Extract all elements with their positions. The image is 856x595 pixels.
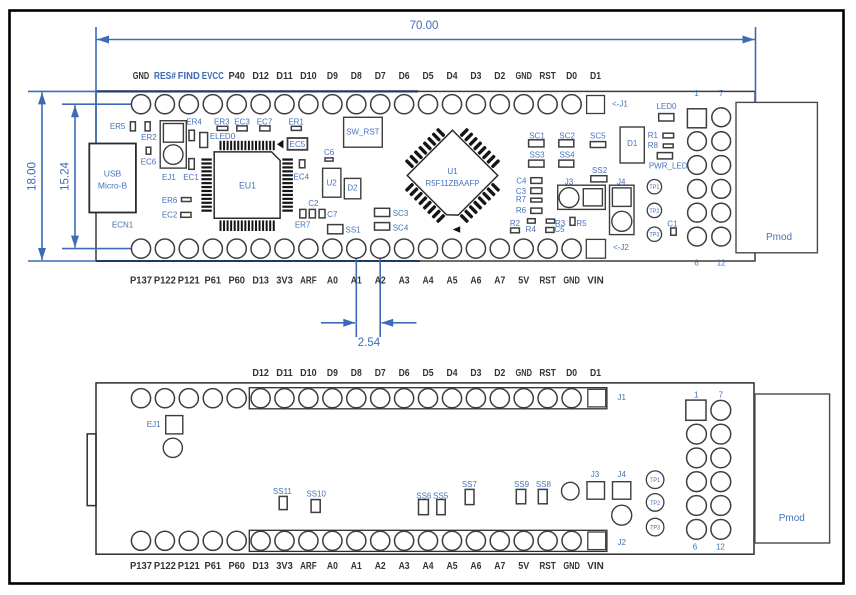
svg-text:A2: A2 xyxy=(375,561,386,572)
svg-text:D9: D9 xyxy=(327,368,338,379)
svg-text:D0: D0 xyxy=(566,368,577,379)
svg-text:EJ1: EJ1 xyxy=(147,420,161,429)
svg-text:18.00: 18.00 xyxy=(27,162,39,191)
svg-text:EC3: EC3 xyxy=(234,117,250,126)
svg-text:D10: D10 xyxy=(300,71,317,82)
svg-text:USB: USB xyxy=(104,169,122,179)
svg-text:A4: A4 xyxy=(423,561,434,572)
svg-text:6: 6 xyxy=(694,259,699,268)
svg-text:ER4: ER4 xyxy=(186,117,202,126)
svg-text:D1: D1 xyxy=(590,71,601,82)
svg-text:LED0: LED0 xyxy=(656,102,677,111)
svg-text:SS3: SS3 xyxy=(529,151,545,160)
svg-text:R2: R2 xyxy=(510,219,521,228)
svg-text:EC6: EC6 xyxy=(141,157,157,166)
svg-text:A7: A7 xyxy=(494,561,505,572)
svg-text:D13: D13 xyxy=(252,276,269,287)
svg-text:D1: D1 xyxy=(627,139,638,148)
svg-text:D11: D11 xyxy=(276,71,293,82)
svg-text:TP2: TP2 xyxy=(650,500,660,507)
svg-text:D11: D11 xyxy=(276,368,293,379)
svg-text:5V: 5V xyxy=(518,276,529,287)
svg-text:SW_RST: SW_RST xyxy=(346,128,379,137)
svg-text:SC5: SC5 xyxy=(590,132,606,141)
svg-text:P40: P40 xyxy=(228,71,245,82)
svg-text:TP3: TP3 xyxy=(650,525,660,532)
svg-text:ER7: ER7 xyxy=(295,220,311,229)
svg-text:P121: P121 xyxy=(178,276,200,287)
svg-text:C7: C7 xyxy=(327,210,338,219)
svg-text:EC7: EC7 xyxy=(257,117,273,126)
svg-text:7: 7 xyxy=(719,390,724,399)
svg-text:P60: P60 xyxy=(228,561,245,572)
svg-text:D6: D6 xyxy=(399,71,410,82)
svg-text:3V3: 3V3 xyxy=(276,276,293,287)
svg-text:P61: P61 xyxy=(205,276,222,287)
svg-text:D10: D10 xyxy=(300,368,317,379)
svg-text:D7: D7 xyxy=(375,71,386,82)
svg-text:RST: RST xyxy=(539,276,556,287)
svg-text:70.00: 70.00 xyxy=(410,20,439,32)
svg-text:ELED0: ELED0 xyxy=(210,132,236,141)
svg-text:D6: D6 xyxy=(399,368,410,379)
svg-text:3V3: 3V3 xyxy=(276,561,293,572)
svg-text:D4: D4 xyxy=(447,368,458,379)
svg-text:A0: A0 xyxy=(327,561,338,572)
svg-text:A5: A5 xyxy=(447,276,458,287)
svg-text:ARF: ARF xyxy=(300,561,317,572)
svg-text:GND: GND xyxy=(515,368,532,379)
svg-text:RST: RST xyxy=(539,71,556,82)
svg-text:EC4: EC4 xyxy=(294,173,310,182)
svg-text:SS7: SS7 xyxy=(462,480,478,489)
svg-text:SS9: SS9 xyxy=(514,480,530,489)
svg-text:<-J2: <-J2 xyxy=(613,243,629,252)
svg-text:12: 12 xyxy=(716,542,725,551)
svg-text:D5: D5 xyxy=(423,368,434,379)
svg-text:6: 6 xyxy=(693,542,698,551)
svg-text:RST: RST xyxy=(539,368,556,379)
svg-text:SS2: SS2 xyxy=(592,166,608,175)
svg-text:RST: RST xyxy=(539,561,556,572)
svg-text:GND: GND xyxy=(563,561,580,572)
svg-text:A0: A0 xyxy=(327,276,338,287)
svg-text:D9: D9 xyxy=(327,71,338,82)
svg-text:P60: P60 xyxy=(228,276,245,287)
svg-text:PWR_LED: PWR_LED xyxy=(649,161,688,170)
svg-text:A2: A2 xyxy=(375,276,386,287)
svg-text:ER6: ER6 xyxy=(162,196,178,205)
svg-text:D3: D3 xyxy=(470,368,481,379)
svg-text:P121: P121 xyxy=(178,561,200,572)
svg-text:A6: A6 xyxy=(470,276,481,287)
svg-text:15.24: 15.24 xyxy=(60,162,72,191)
svg-text:RES#: RES# xyxy=(154,71,176,82)
svg-text:SC4: SC4 xyxy=(393,224,409,233)
svg-text:SS10: SS10 xyxy=(306,490,326,499)
svg-text:R5: R5 xyxy=(576,219,587,228)
svg-text:D2: D2 xyxy=(347,183,358,192)
svg-text:D12: D12 xyxy=(252,368,269,379)
svg-text:A1: A1 xyxy=(351,276,362,287)
svg-text:VIN: VIN xyxy=(587,561,604,572)
svg-text:A7: A7 xyxy=(494,276,505,287)
svg-text:Pmod: Pmod xyxy=(779,513,805,524)
svg-text:R5F11ZBAAFP: R5F11ZBAAFP xyxy=(426,178,480,188)
svg-text:D0: D0 xyxy=(566,71,577,82)
svg-text:J3: J3 xyxy=(591,470,600,479)
svg-text:A1: A1 xyxy=(351,561,362,572)
svg-text:U2: U2 xyxy=(326,179,337,188)
svg-text:P122: P122 xyxy=(154,561,176,572)
svg-text:P137: P137 xyxy=(130,561,152,572)
svg-text:C2: C2 xyxy=(308,199,319,208)
svg-text:Micro-B: Micro-B xyxy=(98,181,128,191)
svg-text:SS4: SS4 xyxy=(559,151,575,160)
svg-text:C4: C4 xyxy=(516,176,527,185)
svg-text:D7: D7 xyxy=(375,368,386,379)
svg-text:12: 12 xyxy=(717,259,726,268)
svg-text:D13: D13 xyxy=(252,561,269,572)
svg-text:A3: A3 xyxy=(399,561,410,572)
svg-text:ARF: ARF xyxy=(300,276,317,287)
svg-text:FIND: FIND xyxy=(178,71,200,82)
svg-text:SS8: SS8 xyxy=(536,480,552,489)
svg-text:D2: D2 xyxy=(494,71,505,82)
svg-text:GND: GND xyxy=(515,71,532,82)
svg-text:GND: GND xyxy=(133,71,150,82)
svg-text:EJ1: EJ1 xyxy=(162,173,176,182)
svg-text:P61: P61 xyxy=(205,561,222,572)
svg-text:A4: A4 xyxy=(423,276,434,287)
svg-text:C6: C6 xyxy=(324,148,335,157)
svg-text:R1: R1 xyxy=(648,131,659,140)
svg-text:R8: R8 xyxy=(648,141,659,150)
svg-text:D12: D12 xyxy=(252,71,269,82)
svg-text:TP3: TP3 xyxy=(649,232,659,239)
svg-text:2.54: 2.54 xyxy=(358,337,381,349)
svg-text:ECN1: ECN1 xyxy=(112,221,134,230)
svg-text:P122: P122 xyxy=(154,276,176,287)
svg-text:R4: R4 xyxy=(526,225,537,234)
svg-text:D5: D5 xyxy=(423,71,434,82)
svg-text:SS1: SS1 xyxy=(346,226,362,235)
svg-text:J1: J1 xyxy=(617,393,626,402)
svg-text:D4: D4 xyxy=(447,71,458,82)
svg-text:A6: A6 xyxy=(470,561,481,572)
svg-text:C1: C1 xyxy=(667,219,678,228)
svg-text:EVCC: EVCC xyxy=(202,71,224,82)
svg-text:1: 1 xyxy=(694,390,699,399)
svg-text:5V: 5V xyxy=(518,561,529,572)
svg-text:7: 7 xyxy=(719,89,724,98)
svg-text:EC2: EC2 xyxy=(162,211,178,220)
svg-text:EC5: EC5 xyxy=(290,140,306,149)
svg-text:U1: U1 xyxy=(447,167,458,176)
svg-text:ER1: ER1 xyxy=(288,117,304,126)
svg-text:A5: A5 xyxy=(447,561,458,572)
svg-text:EC1: EC1 xyxy=(183,173,199,182)
svg-text:J2: J2 xyxy=(617,538,626,547)
svg-text:P137: P137 xyxy=(130,276,152,287)
svg-text:GND: GND xyxy=(563,276,580,287)
svg-text:C5: C5 xyxy=(554,225,565,234)
svg-text:<-J1: <-J1 xyxy=(612,100,628,109)
svg-text:SS11: SS11 xyxy=(273,487,293,496)
svg-text:D8: D8 xyxy=(351,368,362,379)
svg-text:J4: J4 xyxy=(617,470,626,479)
svg-text:D3: D3 xyxy=(470,71,481,82)
svg-text:Pmod: Pmod xyxy=(766,232,792,243)
svg-text:ER3: ER3 xyxy=(214,117,230,126)
svg-text:D1: D1 xyxy=(590,368,601,379)
svg-text:ER2: ER2 xyxy=(141,133,157,142)
svg-text:VIN: VIN xyxy=(587,276,604,287)
svg-text:D2: D2 xyxy=(494,368,505,379)
svg-text:ER5: ER5 xyxy=(110,122,126,131)
svg-text:TP1: TP1 xyxy=(649,184,659,191)
svg-text:1: 1 xyxy=(694,89,699,98)
svg-text:R7: R7 xyxy=(516,195,527,204)
svg-text:D8: D8 xyxy=(351,71,362,82)
svg-text:SC3: SC3 xyxy=(393,209,409,218)
svg-text:EU1: EU1 xyxy=(239,180,256,190)
svg-text:TP1: TP1 xyxy=(650,477,660,484)
svg-text:TP2: TP2 xyxy=(649,208,659,215)
svg-text:A3: A3 xyxy=(399,276,410,287)
svg-text:R6: R6 xyxy=(516,206,527,215)
